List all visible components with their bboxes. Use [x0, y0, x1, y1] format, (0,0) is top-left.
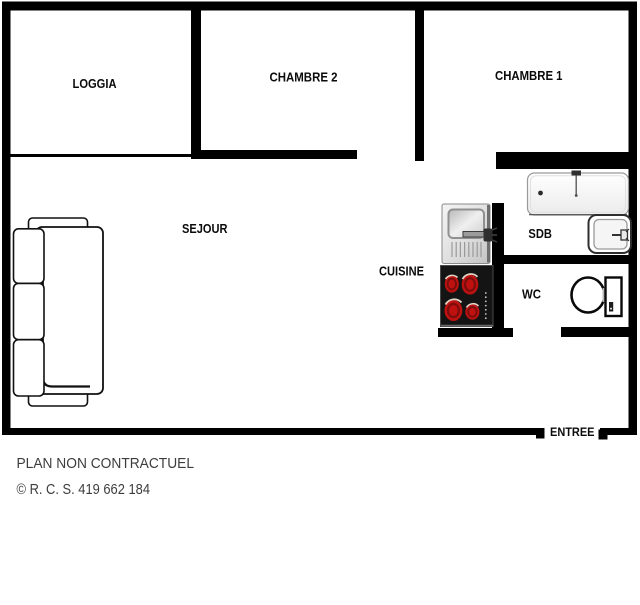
svg-text:© R. C. S. 419 662 184: © R. C. S. 419 662 184: [17, 482, 151, 498]
svg-text:WC: WC: [522, 287, 542, 302]
svg-text:ENTREE: ENTREE: [550, 425, 595, 439]
svg-text:CUISINE: CUISINE: [379, 265, 424, 279]
svg-text:LOGGIA: LOGGIA: [73, 76, 118, 91]
svg-text:SDB: SDB: [528, 226, 552, 241]
svg-text:SEJOUR: SEJOUR: [182, 221, 228, 236]
svg-text:PLAN NON CONTRACTUEL: PLAN NON CONTRACTUEL: [17, 456, 195, 472]
svg-text:CHAMBRE 1: CHAMBRE 1: [495, 68, 563, 83]
svg-text:CHAMBRE 2: CHAMBRE 2: [270, 69, 338, 84]
